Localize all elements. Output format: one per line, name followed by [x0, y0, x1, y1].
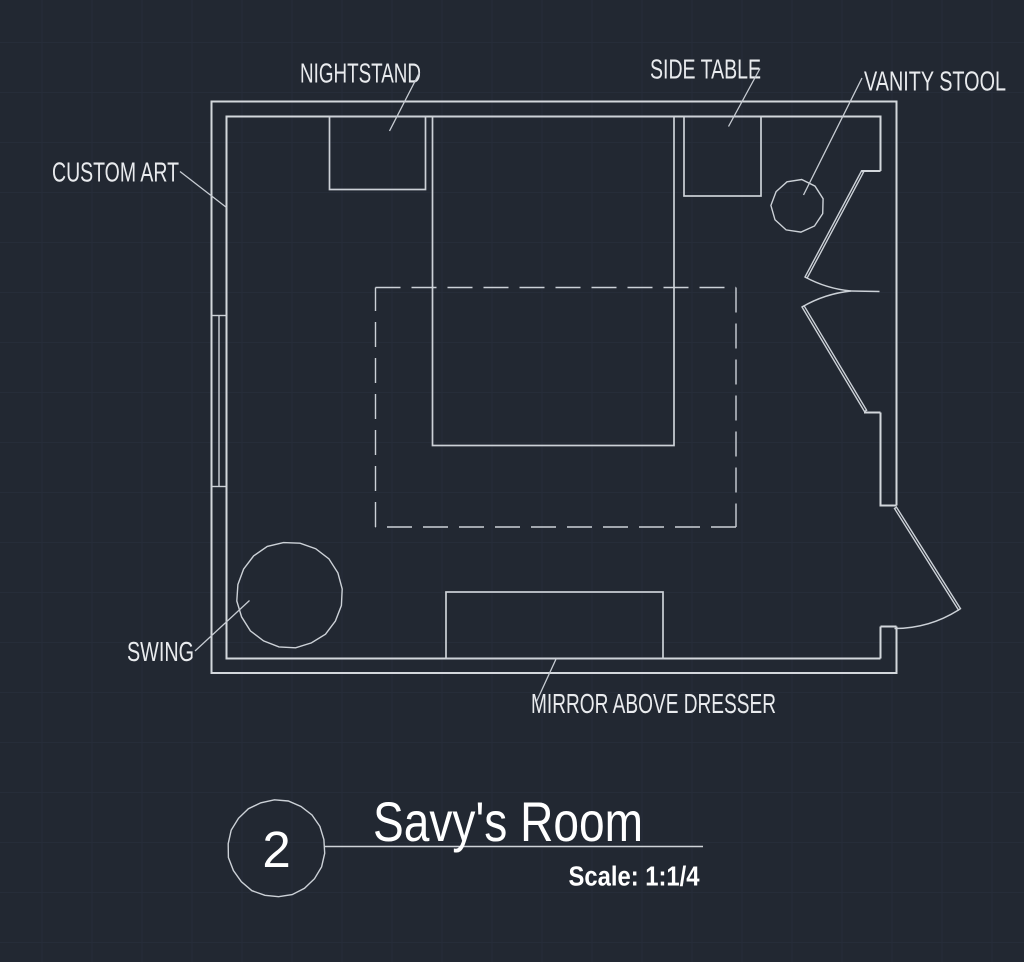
svg-text:2: 2	[262, 821, 290, 878]
svg-text:SWING: SWING	[127, 636, 194, 667]
svg-text:SIDE TABLE: SIDE TABLE	[650, 54, 761, 85]
svg-text:Savy's Room: Savy's Room	[373, 790, 643, 853]
svg-text:MIRROR ABOVE DRESSER: MIRROR ABOVE DRESSER	[531, 688, 776, 719]
svg-text:CUSTOM ART: CUSTOM ART	[52, 156, 179, 187]
svg-text:VANITY STOOL: VANITY STOOL	[864, 66, 1006, 97]
svg-text:Scale: 1:1/4: Scale: 1:1/4	[569, 861, 700, 892]
svg-text:NIGHTSTAND: NIGHTSTAND	[300, 57, 421, 88]
